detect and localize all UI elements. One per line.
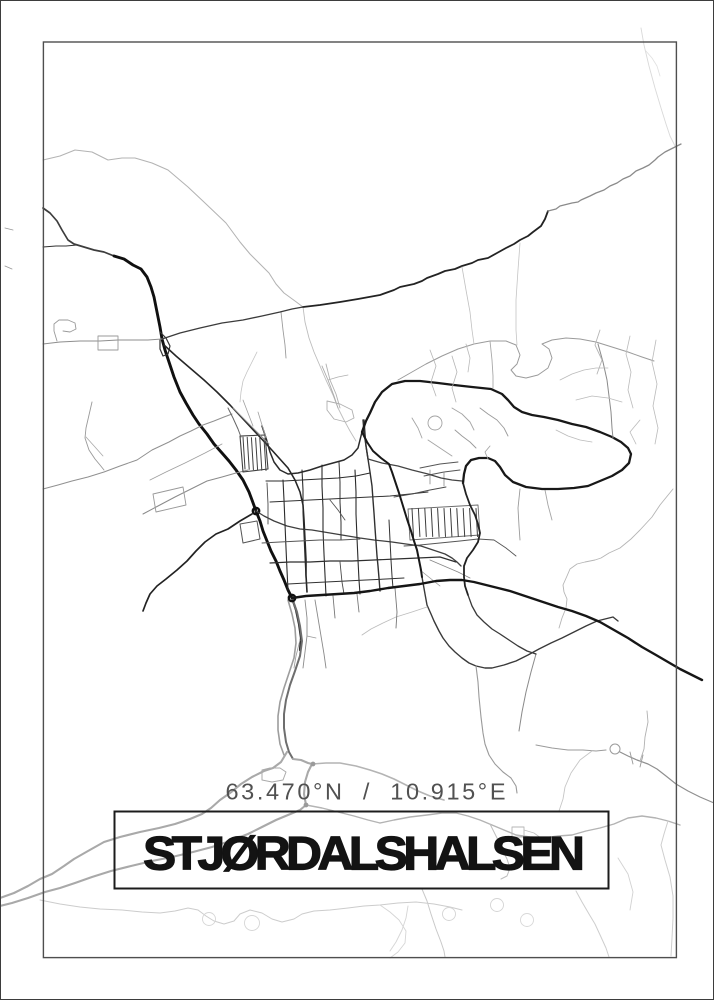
svg-text:63.470°N / 10.915°E: 63.470°N / 10.915°E — [226, 779, 506, 805]
svg-text:STJØRDALSHALSEN: STJØRDALSHALSEN — [143, 828, 585, 880]
